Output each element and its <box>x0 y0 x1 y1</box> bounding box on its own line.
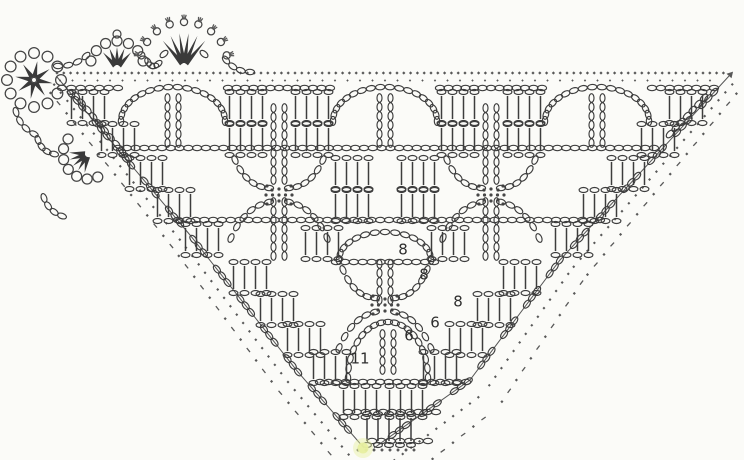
fan-motif <box>134 15 234 66</box>
chain-column <box>380 330 396 375</box>
double-crochet-block <box>397 156 439 192</box>
fan-motif <box>86 30 148 68</box>
start-point-marker <box>353 438 373 458</box>
double-crochet-block <box>225 122 267 158</box>
crochet-chart-diagram <box>0 0 744 460</box>
double-crochet-block <box>331 156 373 192</box>
chain-arch-motif <box>542 84 652 125</box>
double-crochet-block <box>181 222 223 258</box>
chain-arch-motif <box>118 84 228 125</box>
fan-motif <box>2 48 67 113</box>
border-connector-chain <box>143 57 163 70</box>
double-crochet-block <box>67 90 109 126</box>
double-crochet-block <box>229 260 271 296</box>
chain-column <box>483 198 499 261</box>
chain-column <box>271 198 287 261</box>
double-crochet-block <box>551 222 593 258</box>
double-crochet-block <box>291 90 333 126</box>
chain-column <box>377 94 393 148</box>
border-connector-chain <box>221 55 255 75</box>
border-connector-chain <box>12 107 39 139</box>
double-crochet-block <box>225 90 267 126</box>
double-crochet-block <box>437 122 479 158</box>
double-crochet-block <box>419 350 461 386</box>
double-crochet-block <box>331 188 373 224</box>
fan-motif <box>59 134 103 184</box>
double-crochet-block <box>503 122 545 158</box>
chain-column <box>589 94 605 148</box>
chain-column <box>271 104 287 185</box>
chain-column <box>483 104 499 185</box>
double-crochet-block <box>499 260 541 296</box>
double-crochet-block <box>503 90 545 126</box>
double-crochet-block <box>445 322 487 358</box>
border-connector-chain <box>40 193 67 220</box>
top-edge-stitch-rows <box>55 71 725 81</box>
double-crochet-block <box>579 188 621 224</box>
double-crochet-block <box>309 350 351 386</box>
double-crochet-block <box>283 322 325 358</box>
crochet-chart-page: 8886611 <box>0 0 744 460</box>
double-crochet-block <box>437 90 479 126</box>
chain-arch-motif <box>345 319 430 382</box>
chain-arch-motif <box>330 84 440 125</box>
double-crochet-block <box>291 122 333 158</box>
left-edge <box>49 77 364 460</box>
chain-column <box>165 94 181 148</box>
border-connector-chain <box>34 135 59 158</box>
